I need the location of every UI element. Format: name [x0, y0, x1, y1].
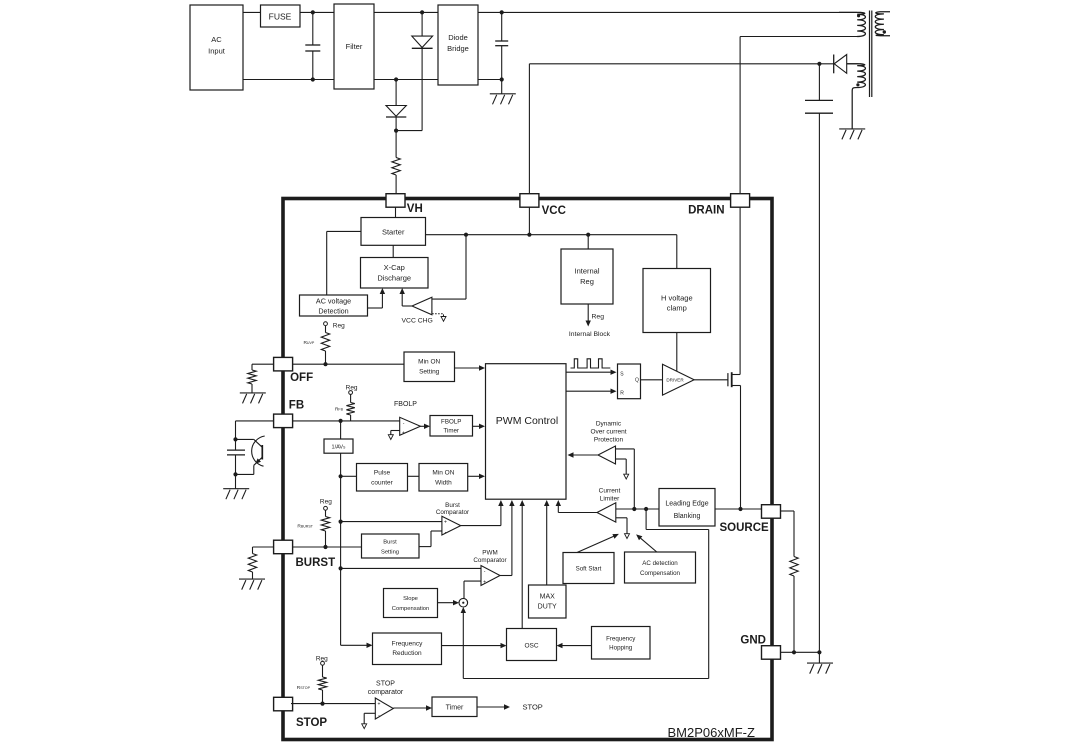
svg-text:AC: AC — [211, 35, 222, 44]
svg-text:H voltage: H voltage — [661, 294, 693, 303]
svg-text:STOP: STOP — [296, 717, 327, 729]
svg-text:Reg: Reg — [320, 499, 332, 506]
svg-text:STOP: STOP — [523, 703, 543, 712]
svg-text:Q: Q — [635, 378, 639, 384]
svg-text:FB: FB — [289, 400, 304, 412]
svg-text:+: + — [444, 520, 447, 526]
svg-text:Slope: Slope — [403, 596, 418, 602]
svg-text:X-Cap: X-Cap — [384, 263, 405, 272]
svg-text:Width: Width — [435, 480, 452, 487]
svg-text:Frequency: Frequency — [392, 641, 423, 648]
svg-text:clamp: clamp — [667, 304, 687, 313]
svg-text:Comparator: Comparator — [473, 557, 506, 564]
svg-text:R: R — [620, 391, 624, 397]
svg-text:OFF: OFF — [290, 372, 313, 384]
svg-text:Frequency: Frequency — [606, 636, 636, 643]
svg-text:Current: Current — [599, 488, 621, 495]
svg-text:Input: Input — [208, 47, 226, 56]
svg-text:Comparator: Comparator — [436, 509, 469, 516]
svg-text:SOURCE: SOURCE — [720, 522, 770, 534]
svg-text:BURST: BURST — [296, 557, 336, 569]
svg-text:DRIVER: DRIVER — [666, 378, 684, 383]
svg-text:+: + — [377, 702, 380, 708]
svg-text:Diode: Diode — [448, 33, 468, 42]
svg-text:Reg: Reg — [346, 385, 358, 392]
svg-text:Blanking: Blanking — [674, 513, 701, 520]
svg-text:BM2P06xMF-Z: BM2P06xMF-Z — [668, 725, 755, 740]
svg-text:Setting: Setting — [419, 369, 440, 376]
svg-text:Hopping: Hopping — [609, 645, 633, 652]
svg-text:FUSE: FUSE — [269, 12, 292, 22]
svg-text:DRAIN: DRAIN — [688, 205, 724, 217]
svg-text:FBOLP: FBOLP — [394, 401, 417, 408]
svg-text:Over current: Over current — [590, 429, 626, 436]
svg-text:Reg: Reg — [316, 656, 328, 663]
svg-text:Leading Edge: Leading Edge — [665, 501, 708, 508]
svg-text:Bridge: Bridge — [447, 44, 469, 53]
svg-text:Timer: Timer — [443, 428, 459, 435]
svg-text:Limiter: Limiter — [600, 496, 620, 503]
svg-text:Detection: Detection — [318, 307, 348, 316]
svg-text:Soft Start: Soft Start — [576, 566, 602, 573]
svg-text:VH: VH — [407, 203, 423, 215]
svg-text:Burst: Burst — [383, 540, 397, 546]
svg-text:Discharge: Discharge — [377, 274, 411, 283]
svg-text:Reg: Reg — [580, 277, 594, 286]
svg-text:counter: counter — [371, 480, 394, 487]
svg-text:Timer: Timer — [446, 705, 464, 712]
svg-text:AC voltage: AC voltage — [316, 297, 351, 306]
svg-text:PWM Control: PWM Control — [496, 415, 558, 427]
svg-text:STOP: STOP — [376, 681, 395, 688]
svg-text:OSC: OSC — [524, 643, 538, 650]
svg-text:GND: GND — [740, 635, 766, 647]
svg-text:Reduction: Reduction — [392, 650, 422, 657]
svg-text:VCC: VCC — [542, 205, 566, 217]
svg-text:+: + — [483, 579, 486, 585]
svg-text:Reg: Reg — [592, 314, 605, 321]
svg-text:Internal: Internal — [574, 266, 599, 275]
svg-text:MAX: MAX — [540, 594, 556, 601]
svg-text:FBOLP: FBOLP — [441, 419, 461, 426]
svg-text:Compensation: Compensation — [392, 606, 429, 612]
svg-text:Pulse: Pulse — [374, 470, 391, 477]
svg-text:Filter: Filter — [346, 42, 363, 51]
svg-text:+: + — [402, 430, 405, 436]
svg-text:Min ON: Min ON — [432, 470, 454, 477]
svg-text:Setting: Setting — [381, 550, 399, 556]
svg-text:Min ON: Min ON — [418, 359, 440, 366]
svg-text:PWM: PWM — [482, 550, 497, 557]
svg-text:Internal Block: Internal Block — [569, 331, 611, 338]
svg-text:Dynamic: Dynamic — [596, 421, 622, 428]
svg-text:comparator: comparator — [368, 689, 404, 696]
svg-text:AC detection: AC detection — [642, 560, 678, 567]
svg-text:Starter: Starter — [382, 228, 405, 237]
svg-text:VCC CHG: VCC CHG — [402, 318, 433, 325]
svg-text:DUTY: DUTY — [538, 604, 557, 611]
svg-text:Reg: Reg — [333, 323, 345, 330]
svg-text:Protection: Protection — [594, 437, 624, 444]
svg-text:Compensation: Compensation — [640, 570, 680, 577]
